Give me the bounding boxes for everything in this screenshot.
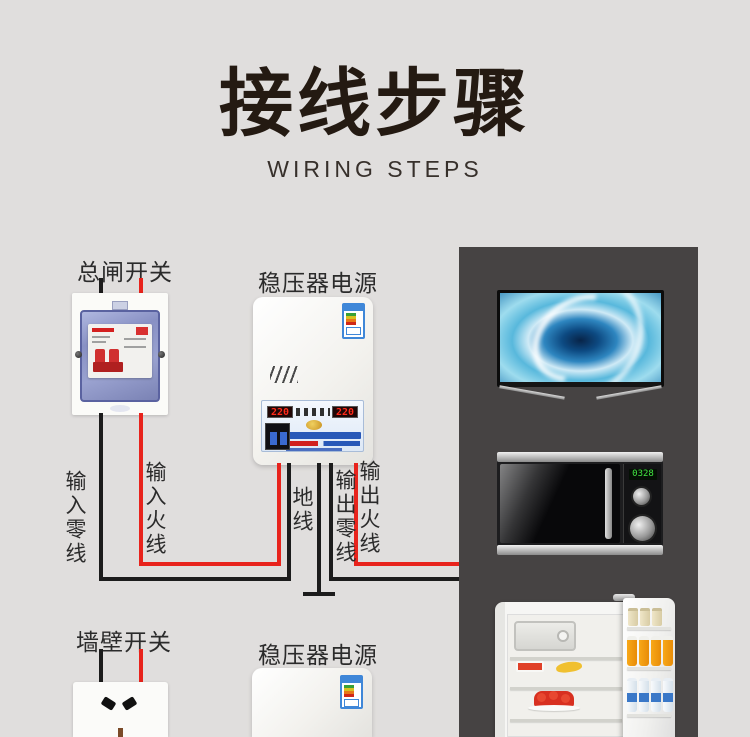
socket-live-stub-wire	[139, 649, 143, 682]
juice-bottle	[651, 636, 661, 666]
stabilizer-bottom-label: 稳压器电源	[258, 636, 378, 670]
wiring-steps-infographic: 接线步骤 WIRING STEPS 总闸开关 稳压器电源	[0, 0, 750, 737]
canned-drink	[640, 608, 650, 626]
canned-drink	[628, 608, 638, 626]
appliance-panel: 0328	[459, 247, 698, 737]
company-text-row	[286, 448, 342, 451]
door-shelf	[627, 714, 671, 717]
water-bottle	[651, 678, 661, 712]
sticker-efficiency-bars	[344, 685, 354, 697]
microwave-knob-large	[630, 516, 655, 541]
microwave-bottom-trim	[497, 545, 663, 555]
door-shelf	[627, 667, 671, 670]
wall-switch-label: 墙壁开关	[76, 623, 172, 657]
water-bottle	[639, 678, 649, 712]
output-live-wire-label: 输出火线	[358, 460, 379, 556]
screw-icon	[158, 351, 165, 358]
juice-bottle	[663, 636, 673, 666]
output-live-wire-across	[354, 562, 459, 566]
thermostat-dial	[557, 630, 569, 642]
input-neutral-wire-across	[99, 577, 291, 581]
refrigerator-image	[495, 598, 675, 737]
socket-slot-right	[122, 696, 138, 711]
sticker-header	[344, 305, 363, 311]
juice-bottle	[627, 636, 637, 666]
input-live-wire-across	[139, 562, 281, 566]
tv-stand-leg	[499, 385, 565, 399]
inset-breaker-icon	[280, 432, 287, 445]
tv-bezel	[500, 382, 661, 387]
page-subtitle: WIRING STEPS	[0, 156, 750, 183]
door-shelf	[627, 627, 671, 630]
breaker-live-stub-wire	[139, 278, 143, 294]
input-neutral-wire-down	[99, 413, 103, 577]
energy-label-sticker	[340, 675, 363, 709]
breaker-tab	[112, 301, 128, 310]
sticker-header	[342, 677, 361, 683]
microwave-door	[500, 464, 620, 543]
energy-label-sticker	[342, 303, 365, 339]
fridge-open-door	[623, 598, 675, 737]
voltage-stabilizer-unit-2	[252, 668, 372, 737]
breaker-red-badge	[136, 327, 148, 335]
plate	[528, 705, 580, 711]
output-neutral-wire-across	[329, 577, 459, 581]
microwave-knob-small	[633, 488, 650, 505]
breaker-neutral-stub-wire	[99, 278, 103, 294]
inset-breaker-icon	[270, 432, 277, 445]
breaker-text-line	[124, 346, 146, 348]
page-title: 接线步骤	[0, 60, 750, 149]
strawberry-box	[516, 661, 544, 672]
sticker-efficiency-bars	[346, 313, 356, 325]
indicator-lights	[296, 408, 330, 416]
output-neutral-wire-label: 输出零线	[334, 469, 355, 565]
breaker-brand-mark	[92, 328, 114, 332]
ground-wire	[317, 463, 321, 593]
breaker-notch	[110, 405, 130, 412]
juice-bottle	[639, 636, 649, 666]
bottle-label	[627, 693, 637, 702]
bottle-label	[639, 693, 649, 702]
fridge-shelf	[510, 719, 622, 722]
stabilizer-control-panel: 220 220	[261, 400, 364, 452]
bottle-label	[663, 693, 673, 702]
wall-socket	[73, 682, 168, 737]
breaker-text-line	[92, 341, 106, 343]
microwave-image: 0328	[497, 452, 663, 555]
tv-screen	[497, 290, 664, 387]
breaker-cover	[80, 310, 160, 402]
voltage-stabilizer-unit: 220 220	[253, 297, 373, 465]
water-bottle	[627, 678, 637, 712]
output-voltage-display: 220	[332, 406, 358, 418]
strawberry	[561, 694, 570, 703]
ground-symbol	[303, 592, 335, 596]
tv-swirl-graphic	[497, 290, 664, 387]
stabilizer-top-label: 稳压器电源	[258, 264, 378, 298]
water-bottle	[663, 678, 673, 712]
strawberry	[549, 691, 558, 700]
sticker-info-box	[344, 699, 359, 707]
circuit-breaker-face	[88, 324, 152, 378]
breaker-text-line	[92, 336, 110, 338]
bottle-label	[651, 693, 661, 702]
vent-lines	[270, 366, 298, 383]
model-text-row	[290, 441, 360, 446]
microwave-timer-display: 0328	[629, 469, 657, 480]
main-breaker-label: 总闸开关	[77, 253, 173, 287]
microwave-handle	[605, 468, 612, 539]
breaker-text-line	[124, 338, 146, 340]
socket-neutral-stub-wire	[99, 649, 103, 682]
ground-wire-label: 地线	[291, 486, 312, 534]
strawberry	[537, 693, 546, 702]
microwave-control-panel: 0328	[623, 464, 661, 543]
fridge-interior	[507, 614, 625, 737]
input-voltage-display: 220	[267, 406, 293, 418]
microwave-top-trim	[497, 452, 663, 462]
input-live-wire-up	[277, 463, 281, 562]
socket-slot-left	[101, 696, 117, 711]
input-neutral-wire-label: 输入零线	[64, 470, 85, 566]
fridge-shelf	[510, 657, 622, 660]
fridge-shelf	[510, 687, 622, 690]
breaker-inset-photo	[265, 423, 290, 450]
input-live-wire-label: 输入火线	[144, 461, 165, 557]
main-breaker-box	[72, 293, 168, 415]
screw-icon	[75, 351, 82, 358]
tv-stand-leg	[596, 385, 662, 399]
brand-logo-badge	[306, 420, 322, 430]
sticker-info-box	[346, 327, 361, 335]
breaker-switch-base	[93, 362, 123, 372]
tv-image	[497, 290, 664, 405]
freezer-compartment	[514, 621, 576, 651]
socket-slot-ground	[118, 728, 123, 737]
banana	[555, 660, 582, 674]
canned-drink	[652, 608, 662, 626]
